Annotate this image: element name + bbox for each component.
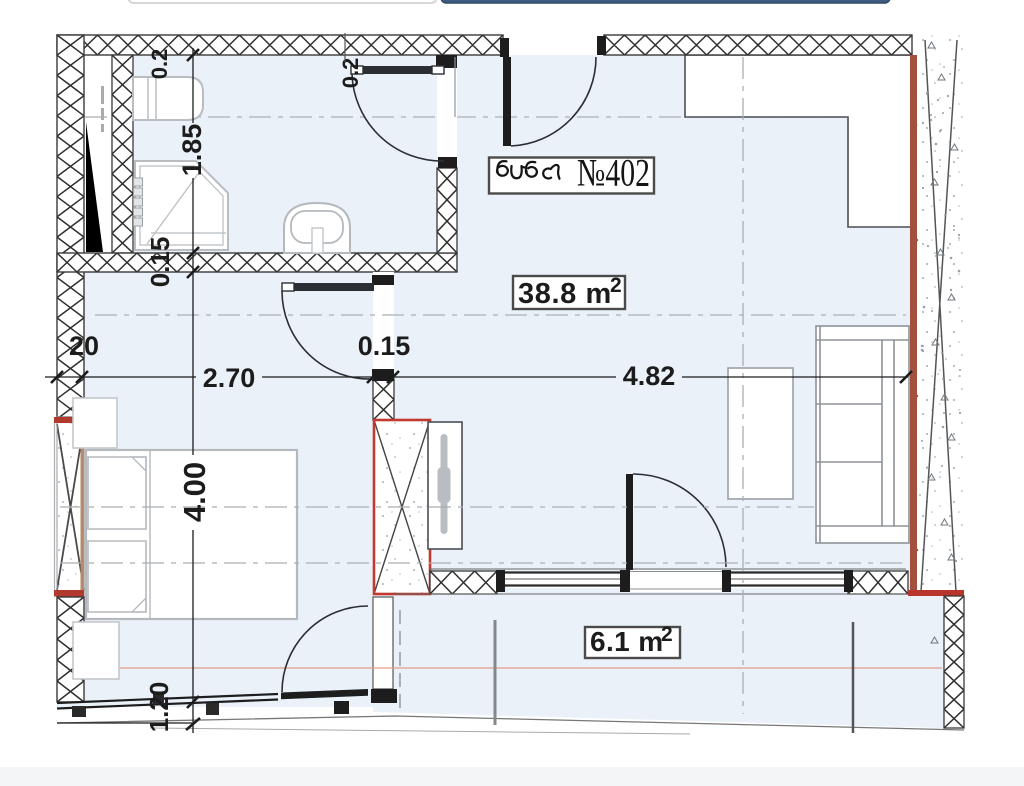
svg-text:38.8 m: 38.8 m — [518, 278, 612, 310]
svg-text:0.15: 0.15 — [145, 237, 175, 288]
svg-text:0.2: 0.2 — [147, 49, 172, 80]
svg-text:2: 2 — [661, 623, 673, 646]
svg-text:1.20: 1.20 — [144, 682, 174, 733]
svg-text:2.70: 2.70 — [203, 363, 256, 393]
svg-text:20: 20 — [69, 331, 99, 361]
svg-text:4.82: 4.82 — [623, 361, 676, 391]
svg-text:0.2: 0.2 — [338, 58, 363, 89]
svg-text:0.15: 0.15 — [358, 331, 411, 361]
svg-text:4.00: 4.00 — [177, 462, 212, 522]
svg-text:№402: №402 — [577, 152, 650, 195]
svg-text:2: 2 — [610, 274, 622, 297]
svg-text:1.85: 1.85 — [177, 124, 207, 177]
svg-text:6.1 m: 6.1 m — [590, 626, 664, 657]
